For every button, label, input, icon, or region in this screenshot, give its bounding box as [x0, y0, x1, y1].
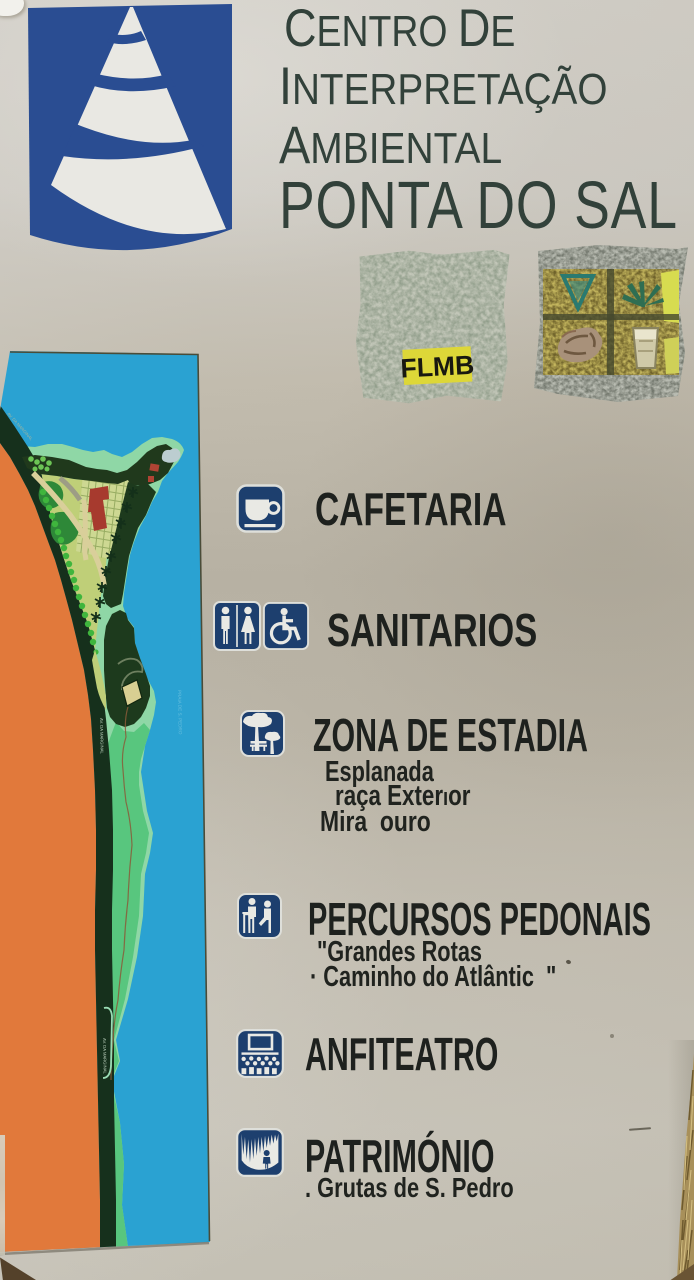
svg-text:AV. DA MARGINAL: AV. DA MARGINAL	[102, 1038, 108, 1075]
svg-text:PRAIA DE S. PEDRO: PRAIA DE S. PEDRO	[177, 690, 183, 735]
svg-text:AV. DA MARGINAL: AV. DA MARGINAL	[99, 718, 105, 755]
